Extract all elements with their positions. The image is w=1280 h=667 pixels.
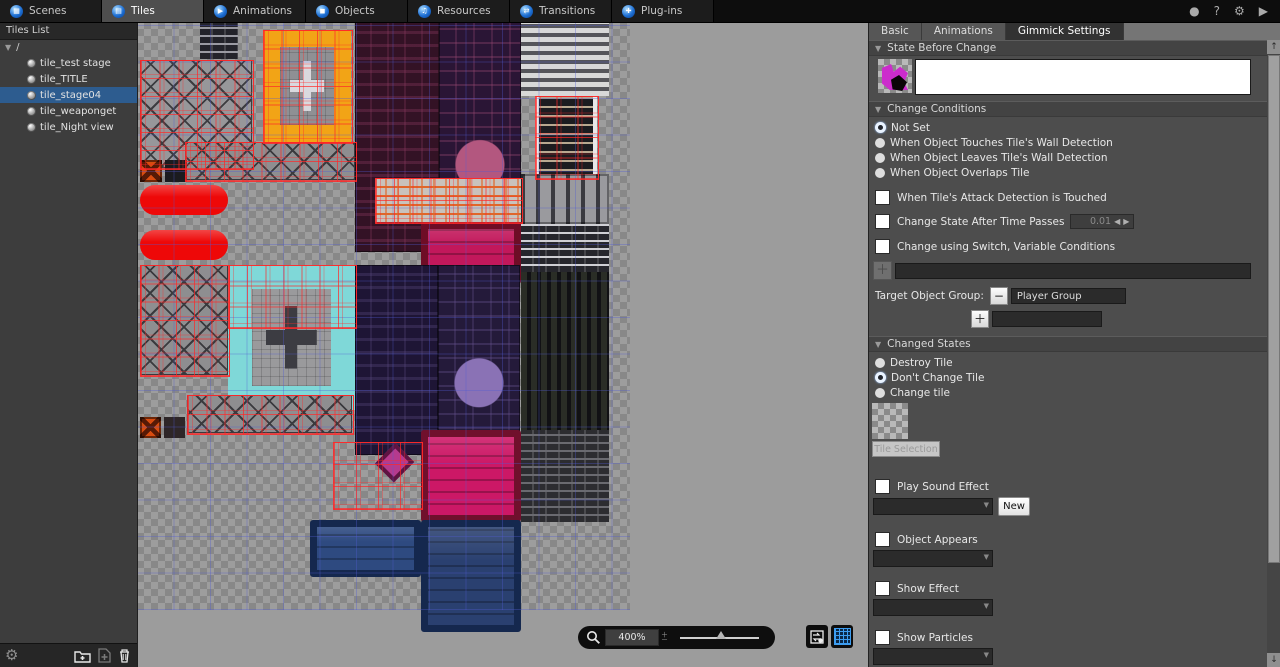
tileset-tile[interactable] — [521, 224, 609, 272]
tileset-tile[interactable] — [535, 96, 597, 178]
tree-root-label: / — [16, 42, 19, 53]
effect-dropdown[interactable] — [873, 599, 993, 616]
tileset-tile[interactable] — [140, 417, 161, 438]
objects-icon: ◼ — [316, 5, 329, 18]
window-icons: ●?⚙▶ — [1189, 0, 1280, 22]
toolbar-tab-plug-ins[interactable]: ✚Plug-ins — [612, 0, 714, 22]
help-icon[interactable]: ? — [1214, 4, 1220, 18]
item-label: tile_stage04 — [40, 90, 101, 101]
tab-label: Tiles — [131, 5, 155, 17]
sound-dropdown[interactable] — [873, 498, 993, 515]
tileset-tile[interactable] — [521, 272, 609, 430]
radio-label: Not Set — [891, 122, 930, 134]
sidebar-item-tile-test-stage[interactable]: tile_test stage — [0, 55, 137, 71]
tab-label: Resources — [437, 5, 491, 17]
target-object-group-row: Target Object Group: − Player Group — [869, 287, 1267, 305]
checkbox-label: Object Appears — [897, 534, 978, 546]
panel-tabs: BasicAnimationsGimmick Settings — [869, 22, 1280, 40]
tab-label: Scenes — [29, 5, 66, 17]
radio-unselected-icon[interactable] — [875, 358, 885, 368]
tab-label: Transitions — [539, 5, 595, 17]
sidebar-gear-icon[interactable]: ⚙ — [5, 648, 18, 663]
radio-label: Destroy Tile — [890, 357, 953, 369]
button-label: New — [1003, 501, 1025, 512]
section-title: Change Conditions — [887, 103, 986, 115]
add-file-icon[interactable] — [98, 648, 111, 663]
radio-label: When Object Leaves Tile's Wall Detection — [890, 152, 1107, 164]
time-passes-checkbox-row[interactable]: Change State After Time Passes 0.01 ◀ ▶ — [869, 214, 1267, 229]
change-condition-option-not-set[interactable]: Not Set — [869, 120, 1267, 135]
panel-scrollbar[interactable]: ↑ ↓ — [1267, 40, 1280, 667]
state-name-input[interactable] — [915, 59, 1251, 95]
tiles-list-sidebar: Tiles List ▼ / tile_test stagetile_TITLE… — [0, 22, 138, 667]
tab-label: Basic — [881, 25, 909, 37]
section-state-before-change[interactable]: ▼ State Before Change — [869, 40, 1267, 56]
tile-sphere-icon — [27, 91, 36, 100]
panel-tab-gimmick-settings[interactable]: Gimmick Settings — [1006, 22, 1124, 40]
zoom-slider-thumb[interactable] — [716, 631, 726, 639]
panel-tab-basic[interactable]: Basic — [869, 22, 922, 40]
resources-icon: ♫ — [418, 5, 431, 18]
tab-label: Plug-ins — [641, 5, 682, 17]
toolbar-tab-resources[interactable]: ♫Resources — [408, 0, 510, 22]
new-sound-button[interactable]: New — [998, 497, 1030, 516]
item-label: tile_test stage — [40, 58, 111, 69]
delete-trash-icon[interactable] — [118, 648, 131, 663]
sidebar-footer-buttons — [74, 648, 131, 663]
tile-sphere-icon — [27, 107, 36, 116]
toolbar-tab-animations[interactable]: ▶Animations — [204, 0, 306, 22]
switch-conditions-checkbox-row[interactable]: Change using Switch, Variable Conditions — [869, 239, 1267, 254]
checkbox[interactable] — [875, 214, 890, 229]
radio-label: Change tile — [890, 387, 950, 399]
checkbox[interactable] — [875, 239, 890, 254]
remove-group-button[interactable]: − — [990, 287, 1008, 305]
tileset-tile[interactable] — [355, 265, 438, 455]
grid-icon — [834, 628, 851, 645]
tileset-tile[interactable] — [310, 520, 421, 577]
gimmick-settings-content: ▼ State Before Change ▼ Change Condition… — [869, 40, 1267, 667]
item-label: tile_weaponget — [40, 106, 116, 117]
toggle-grid-button[interactable] — [831, 625, 853, 648]
collapse-icon[interactable]: ▼ — [875, 340, 881, 349]
spike-shape — [374, 443, 414, 483]
scrollbar-thumb[interactable] — [1268, 55, 1280, 563]
display-settings-button[interactable] — [806, 625, 828, 648]
radio-unselected-icon[interactable] — [875, 153, 885, 163]
target-group-value: Player Group — [1017, 291, 1082, 302]
target-group-field[interactable]: Player Group — [1011, 288, 1126, 304]
state-tile-preview[interactable] — [878, 59, 912, 93]
tileset-tile[interactable] — [165, 160, 187, 182]
tileset-tile[interactable] — [140, 160, 162, 182]
tileset-tile[interactable] — [185, 142, 355, 180]
button-label: Tile Selection — [874, 444, 937, 455]
tileset-tile[interactable] — [140, 230, 228, 260]
checkbox-label: Play Sound Effect — [897, 481, 989, 493]
app-window: ▦Scenes▤Tiles▶Animations◼Objects♫Resourc… — [0, 0, 1280, 667]
tileset-tile[interactable] — [521, 174, 609, 224]
checkbox-label: Change State After Time Passes — [897, 216, 1064, 228]
checkbox[interactable] — [875, 479, 890, 494]
stepper-right-icon[interactable]: ▶ — [1123, 217, 1129, 226]
change-tile-preview[interactable] — [872, 403, 908, 439]
radio-unselected-icon[interactable] — [875, 138, 885, 148]
add-condition-button[interactable]: ＋ — [873, 261, 892, 280]
change-condition-option-when-object-leaves-tile-s-wall-detection[interactable]: When Object Leaves Tile's Wall Detection — [869, 150, 1267, 165]
checkbox[interactable] — [875, 581, 890, 596]
status-circle-icon[interactable]: ● — [1189, 4, 1199, 18]
item-label: tile_TITLE — [40, 74, 88, 85]
scenes-icon: ▦ — [10, 5, 23, 18]
tab-label: Objects — [335, 5, 375, 17]
particles-dropdown[interactable] — [873, 648, 993, 665]
radio-label: When Object Touches Tile's Wall Detectio… — [890, 137, 1113, 149]
time-value-stepper: 0.01 ◀ ▶ — [1070, 214, 1134, 229]
tileset-tile[interactable] — [375, 442, 413, 484]
tiles-list-title: Tiles List — [0, 22, 137, 40]
item-label: tile_Night view — [40, 122, 114, 133]
tile-sphere-icon — [27, 59, 36, 68]
zoom-value[interactable]: 400% — [605, 629, 659, 646]
new-group-field[interactable] — [992, 311, 1102, 327]
tileset-tile[interactable] — [421, 430, 521, 522]
tileset-tile[interactable] — [421, 520, 521, 632]
change-condition-option-when-object-overlaps-tile[interactable]: When Object Overlaps Tile — [869, 165, 1267, 180]
section-title: Changed States — [887, 338, 970, 350]
collapse-icon[interactable]: ▼ — [875, 44, 881, 53]
tileset-tile[interactable] — [375, 178, 521, 222]
tree-collapse-icon[interactable]: ▼ — [5, 43, 11, 52]
panel-tab-animations[interactable]: Animations — [922, 22, 1006, 40]
toolbar-tab-objects[interactable]: ◼Objects — [306, 0, 408, 22]
toolbar-tab-tiles[interactable]: ▤Tiles — [102, 0, 204, 22]
stepper-left-icon[interactable]: ◀ — [1114, 217, 1120, 226]
animations-icon: ▶ — [214, 5, 227, 18]
object-appears-checkbox-row[interactable]: Object Appears — [869, 532, 1267, 547]
changed-states-radio-group: Destroy TileDon't Change TileChange tile — [869, 355, 1267, 400]
object-dropdown[interactable] — [873, 550, 993, 567]
add-folder-icon[interactable] — [74, 649, 91, 663]
checkbox[interactable] — [875, 630, 890, 645]
sidebar-item-tile-stage04[interactable]: tile_stage04 — [0, 87, 137, 103]
tab-label: Animations — [233, 5, 292, 17]
radio-selected-icon[interactable] — [875, 122, 886, 133]
checkbox[interactable] — [875, 190, 890, 205]
tileset-tile[interactable] — [228, 265, 355, 410]
tile-sphere-icon — [27, 123, 36, 132]
tile-sphere-icon — [27, 75, 36, 84]
magnifier-icon — [586, 630, 601, 645]
run-icon[interactable]: ▶ — [1259, 4, 1268, 18]
time-value: 0.01 — [1090, 216, 1111, 227]
toolbar-tab-scenes[interactable]: ▦Scenes — [0, 0, 102, 22]
sidebar-item-tile-title[interactable]: tile_TITLE — [0, 71, 137, 87]
tileset-tile[interactable] — [438, 265, 520, 455]
condition-list-field[interactable] — [895, 263, 1251, 279]
section-title: State Before Change — [887, 42, 996, 54]
tab-label: Animations — [934, 25, 993, 37]
transitions-icon: ⇄ — [520, 5, 533, 18]
tileset-canvas[interactable]: 400% ＋－ — [137, 22, 868, 667]
checkbox-label: Change using Switch, Variable Conditions — [897, 241, 1115, 253]
checkbox-label: Show Effect — [897, 583, 959, 595]
changed-state-option-destroy-tile[interactable]: Destroy Tile — [869, 355, 1267, 370]
change-condition-option-when-object-touches-tile-s-wall-detection[interactable]: When Object Touches Tile's Wall Detectio… — [869, 135, 1267, 150]
changed-state-option-change-tile[interactable]: Change tile — [869, 385, 1267, 400]
add-group-button[interactable]: ＋ — [971, 310, 989, 328]
tree-root-row[interactable]: ▼ / — [0, 40, 137, 55]
sidebar-item-tile-weaponget[interactable]: tile_weaponget — [0, 103, 137, 119]
display-settings-icon — [809, 629, 825, 645]
tileset-tile[interactable] — [200, 22, 238, 59]
radio-unselected-icon[interactable] — [875, 168, 885, 178]
section-changed-states[interactable]: ▼ Changed States — [869, 336, 1267, 352]
tile-cross-pattern — [290, 61, 325, 111]
zoom-slider[interactable] — [680, 637, 759, 639]
checkbox[interactable] — [875, 532, 890, 547]
changed-state-option-don-t-change-tile[interactable]: Don't Change Tile — [869, 370, 1267, 385]
sidebar-footer: ⚙ — [0, 643, 137, 667]
target-group-label: Target Object Group: — [875, 290, 984, 302]
scroll-up-icon[interactable]: ↑ — [1267, 40, 1280, 54]
zoom-bar: 400% ＋－ — [578, 626, 775, 649]
zoom-stepper[interactable]: ＋－ — [661, 633, 668, 643]
tileset-tile[interactable] — [140, 265, 228, 375]
tileset-tile[interactable] — [164, 417, 185, 438]
tileset-tile[interactable] — [521, 22, 609, 96]
main-toolbar: ▦Scenes▤Tiles▶Animations◼Objects♫Resourc… — [0, 0, 1280, 23]
radio-label: Don't Change Tile — [891, 372, 984, 384]
toolbar-tab-transitions[interactable]: ⇄Transitions — [510, 0, 612, 22]
tile-cross-pattern — [266, 306, 317, 368]
collapse-icon[interactable]: ▼ — [875, 105, 881, 114]
radio-unselected-icon[interactable] — [875, 388, 885, 398]
tileset-tile[interactable] — [263, 30, 351, 142]
checkbox-label: Show Particles — [897, 632, 973, 644]
tileset-tile[interactable] — [140, 185, 228, 215]
change-conditions-radio-group: Not SetWhen Object Touches Tile's Wall D… — [869, 120, 1267, 180]
settings-panel: BasicAnimationsGimmick Settings ▼ State … — [868, 22, 1280, 667]
radio-label: When Object Overlaps Tile — [890, 167, 1030, 179]
checkbox-label: When Tile's Attack Detection is Touched — [897, 192, 1107, 204]
scroll-down-icon[interactable]: ↓ — [1267, 653, 1280, 667]
tileset-tile[interactable] — [521, 430, 609, 522]
show-particles-checkbox-row[interactable]: Show Particles — [869, 630, 1267, 645]
plug-ins-icon: ✚ — [622, 5, 635, 18]
tiles-icon: ▤ — [112, 5, 125, 18]
tile-selection-button[interactable]: Tile Selection — [872, 441, 940, 457]
section-change-conditions[interactable]: ▼ Change Conditions — [869, 101, 1267, 117]
tileset-tile[interactable] — [187, 395, 352, 433]
radio-selected-icon[interactable] — [875, 372, 886, 383]
tab-label: Gimmick Settings — [1018, 25, 1111, 37]
tiles-list: tile_test stagetile_TITLEtile_stage04til… — [0, 55, 137, 135]
attack-detection-checkbox-row[interactable]: When Tile's Attack Detection is Touched — [869, 190, 1267, 205]
settings-gear-icon[interactable]: ⚙ — [1234, 4, 1245, 18]
show-effect-checkbox-row[interactable]: Show Effect — [869, 581, 1267, 596]
sidebar-item-tile-night-view[interactable]: tile_Night view — [0, 119, 137, 135]
play-sound-checkbox-row[interactable]: Play Sound Effect — [869, 479, 1267, 494]
